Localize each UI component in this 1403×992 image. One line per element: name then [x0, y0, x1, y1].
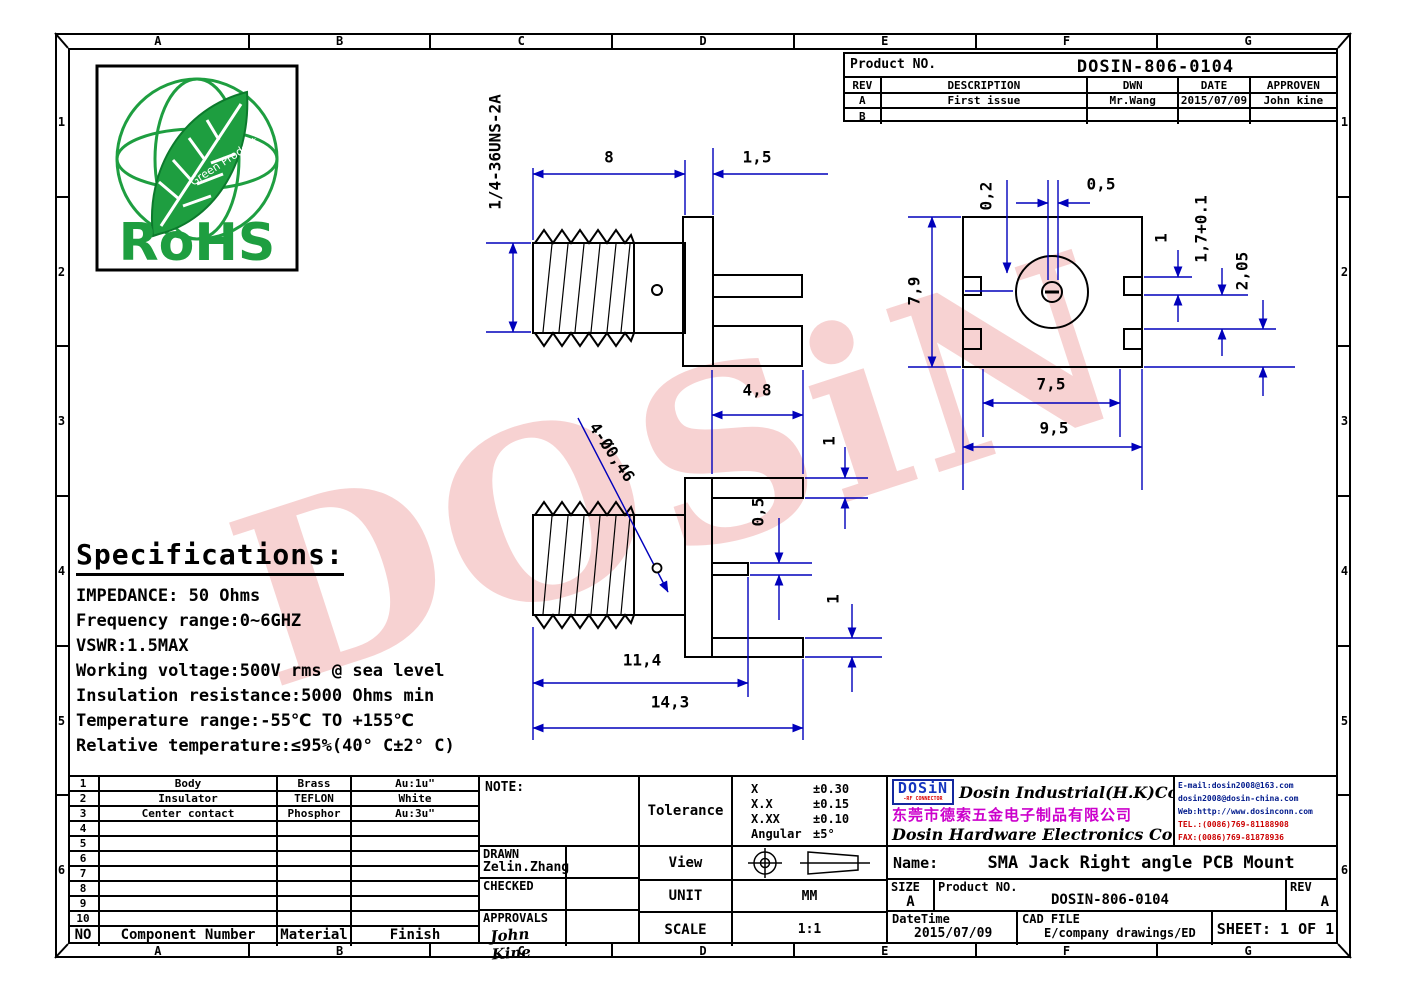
parts-table-cell: [100, 822, 278, 835]
tolerance-value: ±0.15: [813, 797, 849, 812]
checked-label: CHECKED: [483, 880, 562, 893]
parts-table-row: 4: [68, 822, 478, 837]
tolerance-key: X: [751, 782, 813, 797]
tolerance-row: X±0.30: [751, 782, 886, 797]
parts-table-cell: [352, 897, 478, 910]
approven-value: [1251, 109, 1336, 124]
company-contact-line: TEL.:(0086)769-81188908: [1178, 818, 1335, 831]
parts-table-cell: [352, 867, 478, 880]
company-column: DOSiN -RF CONNECTOR Dosin Industrial(H.K…: [888, 777, 1338, 944]
parts-table-cell: 7: [68, 867, 100, 880]
company-contact: E-mail:dosin2008@163.comdosin2008@dosin-…: [1175, 777, 1338, 845]
tolerance-row: X.X±0.15: [751, 797, 886, 812]
specification-line: Working voltage:500V rms @ sea level: [76, 659, 455, 684]
tolerance-cell: Tolerance X±0.30X.X±0.15X.XX±0.10Angular…: [640, 777, 886, 847]
dosin-logo: DOSiN -RF CONNECTOR: [892, 779, 954, 805]
company-contact-line: FAX:(0086)769-81878936: [1178, 831, 1335, 844]
drawn-name: Zelin.Zhang: [483, 861, 562, 875]
specification-line: Relative temperature:≤95%(40° C±2° C): [76, 734, 455, 759]
tolerance-label: Tolerance: [640, 777, 733, 845]
view-cell: View: [640, 847, 886, 881]
description-value: First issue: [882, 94, 1088, 107]
company-name-en2: Dosin Hardware Electronics Co.,Ltd: [892, 825, 1169, 844]
tolerance-column: Tolerance X±0.30X.X±0.15X.XX±0.10Angular…: [640, 777, 888, 944]
description-value: [882, 109, 1088, 124]
parts-table-cell: 2: [68, 792, 100, 805]
rev-value: A: [1290, 894, 1335, 910]
parts-table-cell: 6: [68, 852, 100, 865]
product-name-cell: Name: SMA Jack Right angle PCB Mount: [888, 847, 1338, 880]
parts-table-row: 9: [68, 897, 478, 912]
datetime-label: DateTime: [892, 913, 1012, 926]
parts-table-cell: [352, 822, 478, 835]
parts-table-cell: 1: [68, 777, 100, 790]
parts-table-cell: 8: [68, 882, 100, 895]
dimension-lines: [486, 148, 1295, 740]
parts-table-cell: 9: [68, 897, 100, 910]
tolerance-key: X.XX: [751, 812, 813, 827]
parts-table-header-cell: Material: [278, 927, 352, 946]
unit-value: MM: [733, 881, 886, 911]
parts-table-cell: [100, 837, 278, 850]
rev-value: B: [845, 109, 882, 124]
parts-table-cell: 4: [68, 822, 100, 835]
parts-table-cell: White: [352, 792, 478, 805]
parts-table-cell: [278, 852, 352, 865]
tolerance-value: ±5°: [813, 827, 835, 842]
tolerance-row: Angular±5°: [751, 827, 886, 842]
approvals-signature: John Kine: [490, 923, 563, 964]
product-no-value: DOSIN-806-0104: [975, 57, 1336, 77]
approvals-cell: APPROVALS John Kine: [480, 911, 638, 946]
parts-table-row: 5: [68, 837, 478, 852]
pin-hole: [653, 564, 662, 573]
product-no-value: DOSIN-806-0104: [935, 892, 1285, 908]
note-cell: NOTE:: [480, 777, 638, 847]
checked-cell: CHECKED: [480, 879, 638, 911]
parts-table-row: 1BodyBrassAu:1u": [68, 777, 478, 792]
tolerance-row: X.XX±0.10: [751, 812, 886, 827]
cad-file-label: CAD FILE: [1022, 913, 1207, 926]
specification-line: IMPEDANCE: 50 Ohms: [76, 584, 455, 609]
date-value: 2015/07/09: [1179, 94, 1250, 107]
dwn-value: Mr.Wang: [1088, 94, 1179, 107]
parts-table-cell: [100, 882, 278, 895]
parts-table-header-cell: Finish: [352, 927, 478, 946]
parts-table-cell: 5: [68, 837, 100, 850]
note-column: NOTE: DRAWN Zelin.Zhang CHECKED APPROVAL…: [480, 777, 640, 944]
dosin-logo-text: DOSiN: [894, 781, 952, 796]
datetime-value: 2015/07/09: [892, 926, 1012, 941]
parts-table-cell: Body: [100, 777, 278, 790]
parts-table: 1BodyBrassAu:1u"2InsulatorTEFLONWhite3Ce…: [68, 777, 480, 944]
specification-lines: IMPEDANCE: 50 OhmsFrequency range:0~6GHZ…: [76, 584, 455, 759]
parts-table-cell: [352, 882, 478, 895]
name-label: Name:: [888, 854, 944, 872]
date-row: DateTime 2015/07/09 CAD FILE E/company d…: [888, 912, 1338, 945]
rohs-label: RoHS: [119, 213, 276, 272]
title-block: 1BodyBrassAu:1u"2InsulatorTEFLONWhite3Ce…: [68, 775, 1338, 944]
unit-label: UNIT: [640, 881, 733, 911]
view-end: [963, 217, 1142, 367]
parts-table-cell: Au:3u": [352, 807, 478, 820]
rohs-logo: Green Product RoHS: [95, 64, 299, 272]
projection-symbol-icon: [740, 848, 880, 878]
company-contact-line: E-mail:dosin2008@163.com: [1178, 779, 1335, 792]
date-value: [1179, 109, 1250, 124]
view-label: View: [640, 847, 733, 879]
parts-table-cell: Au:1u": [352, 777, 478, 790]
revision-row-a: A First issue Mr.Wang 2015/07/09 John ki…: [845, 94, 1336, 109]
company-name-cn: 东莞市德索五金电子制品有限公司: [892, 805, 1169, 825]
parts-table-row: 2InsulatorTEFLONWhite: [68, 792, 478, 807]
rev-value: A: [845, 94, 882, 107]
scale-cell: SCALE 1:1: [640, 913, 886, 946]
specification-line: Temperature range:-55℃ TO +155℃: [76, 709, 455, 734]
dwn-header: DWN: [1088, 78, 1179, 92]
sheet-label: SHEET: 1 OF 1: [1213, 912, 1338, 945]
parts-table-cell: Brass: [278, 777, 352, 790]
scale-label: SCALE: [640, 913, 733, 946]
parts-table-cell: 10: [68, 912, 100, 925]
rev-label: REV: [1290, 881, 1335, 894]
parts-table-cell: Phosphor: [278, 807, 352, 820]
parts-table-header-row: NOComponent NumberMaterialFinish: [68, 927, 478, 946]
parts-table-cell: [100, 852, 278, 865]
revision-product-row: Product NO. DOSIN-806-0104: [845, 54, 1336, 78]
parts-table-cell: [352, 912, 478, 925]
parts-table-row: 3Center contactPhosphorAu:3u": [68, 807, 478, 822]
product-no-label: Product NO.: [850, 57, 936, 72]
date-header: DATE: [1179, 78, 1250, 92]
parts-table-cell: [278, 882, 352, 895]
dwn-value: [1088, 109, 1179, 124]
parts-table-cell: [352, 837, 478, 850]
description-header: DESCRIPTION: [882, 78, 1088, 92]
approven-value: John kine: [1251, 94, 1336, 107]
company-contact-line: Web:http://www.dosinconn.com: [1178, 805, 1335, 818]
tolerance-value: ±0.10: [813, 812, 849, 827]
revision-table: Product NO. DOSIN-806-0104 REV DESCRIPTI…: [843, 52, 1338, 122]
cad-file-value: E/company drawings/ED: [1022, 926, 1207, 940]
tolerance-value: ±0.30: [813, 782, 849, 797]
company-info-cell: DOSiN -RF CONNECTOR Dosin Industrial(H.K…: [888, 777, 1338, 847]
parts-table-row: 6: [68, 852, 478, 867]
unit-cell: UNIT MM: [640, 881, 886, 913]
size-value: A: [891, 894, 930, 910]
parts-table-cell: 3: [68, 807, 100, 820]
revision-header-row: REV DESCRIPTION DWN DATE APPROVEN: [845, 78, 1336, 94]
parts-table-header-cell: Component Number: [100, 927, 278, 946]
parts-table-cell: Insulator: [100, 792, 278, 805]
view-side-bottom: [533, 478, 803, 657]
parts-table-cell: Center contact: [100, 807, 278, 820]
parts-table-cell: [100, 912, 278, 925]
parts-table-cell: [100, 867, 278, 880]
parts-table-cell: [100, 897, 278, 910]
company-name-en1: Dosin Industrial(H.K)Co.,Ltd: [959, 783, 1175, 802]
specification-line: VSWR:1.5MAX: [76, 634, 455, 659]
drawn-cell: DRAWN Zelin.Zhang: [480, 847, 638, 879]
revision-row-b: B: [845, 109, 1336, 124]
parts-table-cell: [352, 852, 478, 865]
parts-table-row: 10: [68, 912, 478, 927]
parts-table-cell: [278, 867, 352, 880]
specifications: Specifications: IMPEDANCE: 50 OhmsFreque…: [76, 538, 455, 759]
specification-line: Frequency range:0~6GHZ: [76, 609, 455, 634]
parts-table-cell: [278, 912, 352, 925]
specification-line: Insulation resistance:5000 Ohms min: [76, 684, 455, 709]
parts-table-row: 7: [68, 867, 478, 882]
approven-header: APPROVEN: [1251, 78, 1336, 92]
view-side-top: [533, 217, 802, 366]
company-contact-line: dosin2008@dosin-china.com: [1178, 792, 1335, 805]
parts-table-header-cell: NO: [68, 927, 100, 946]
drawing-sheet: DOSiN ABCDEFG ABCDEFG 123456 123456 Gree…: [0, 0, 1403, 992]
specifications-title: Specifications:: [76, 538, 344, 576]
parts-table-cell: [278, 822, 352, 835]
parts-table-cell: [278, 897, 352, 910]
size-row: SIZE A Product NO. DOSIN-806-0104 REV A: [888, 880, 1338, 912]
tolerance-key: Angular: [751, 827, 813, 842]
parts-table-row: 8: [68, 882, 478, 897]
tolerance-key: X.X: [751, 797, 813, 812]
note-label: NOTE:: [485, 780, 524, 795]
rev-header: REV: [845, 78, 882, 92]
parts-table-cell: [278, 837, 352, 850]
scale-value: 1:1: [733, 913, 886, 946]
product-name-value: SMA Jack Right angle PCB Mount: [944, 853, 1338, 873]
size-label: SIZE: [891, 881, 930, 894]
parts-table-cell: TEFLON: [278, 792, 352, 805]
